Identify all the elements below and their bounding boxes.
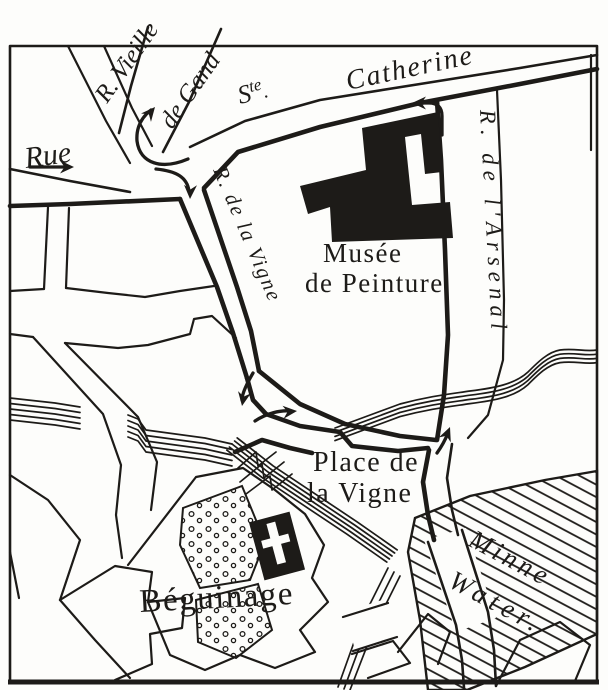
label-place-1: Place de	[313, 447, 419, 478]
label-rue: Rue	[21, 136, 73, 175]
label-musee-1: Musée	[323, 238, 402, 268]
label-musee-2: de Peinture	[305, 268, 444, 298]
map-canvas: Rue Ste. Catherine R. Vieille de Gand R.…	[0, 0, 608, 690]
bruges-tour-map: Rue Ste. Catherine R. Vieille de Gand R.…	[0, 0, 608, 690]
label-place-2: la Vigne	[307, 478, 412, 509]
